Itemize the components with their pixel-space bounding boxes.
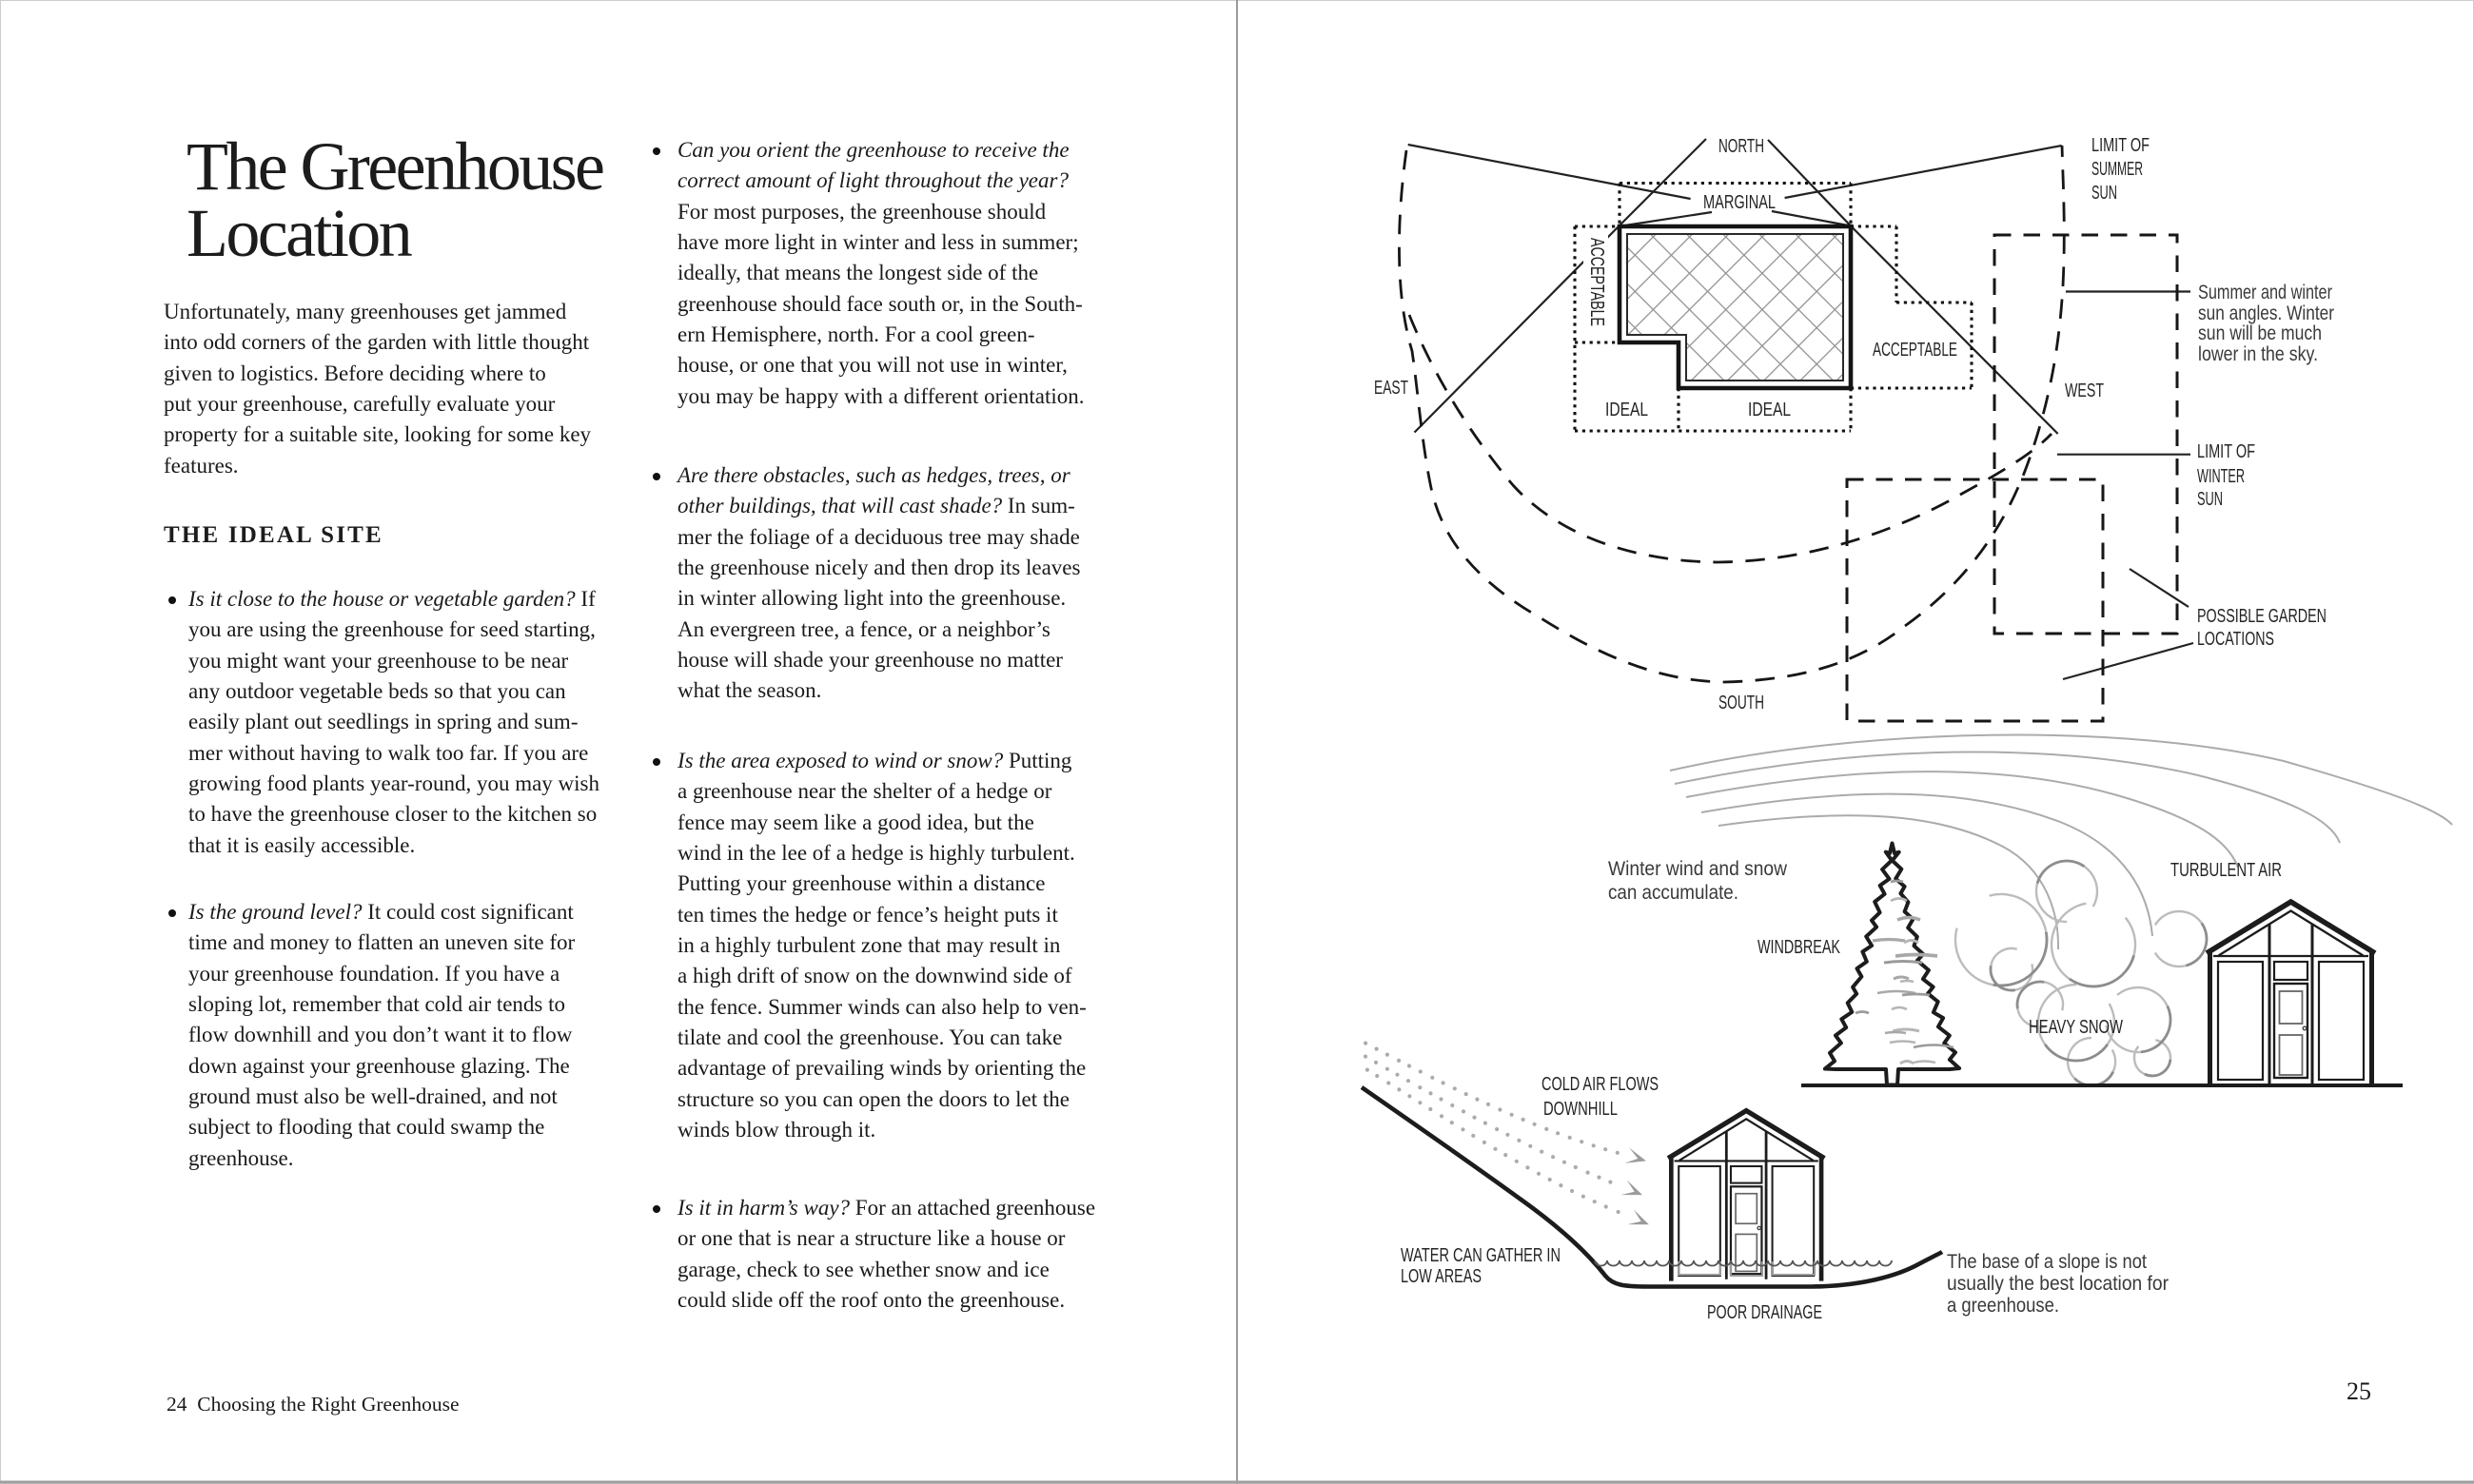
svg-text:POSSIBLE GARDEN: POSSIBLE GARDEN (2197, 605, 2327, 627)
svg-text:SOUTH: SOUTH (1718, 692, 1764, 713)
svg-text:ACCEPTABLE: ACCEPTABLE (1586, 238, 1608, 326)
svg-text:a greenhouse.: a greenhouse. (1947, 1295, 2059, 1317)
svg-text:EAST: EAST (1374, 377, 1408, 399)
svg-text:sun angles. Winter: sun angles. Winter (2198, 303, 2334, 324)
svg-text:LIMIT OF: LIMIT OF (2197, 440, 2255, 462)
svg-text:LOCATIONS: LOCATIONS (2197, 628, 2274, 650)
svg-text:WINTER: WINTER (2197, 465, 2245, 487)
svg-text:DOWNHILL: DOWNHILL (1543, 1098, 1618, 1120)
svg-text:NORTH: NORTH (1718, 135, 1764, 157)
svg-text:IDEAL: IDEAL (1605, 399, 1648, 420)
svg-text:POOR DRAINAGE: POOR DRAINAGE (1707, 1301, 1822, 1323)
svg-text:WATER CAN GATHER IN: WATER CAN GATHER IN (1401, 1244, 1561, 1266)
svg-text:LOW AREAS: LOW AREAS (1401, 1265, 1482, 1287)
svg-text:usually the best location for: usually the best location for (1947, 1273, 2169, 1295)
svg-text:SUMMER: SUMMER (2091, 158, 2143, 180)
svg-text:can accumulate.: can accumulate. (1608, 882, 1738, 904)
svg-text:Summer and winter: Summer and winter (2198, 282, 2332, 303)
svg-text:MARGINAL: MARGINAL (1703, 191, 1776, 213)
svg-text:SUN: SUN (2197, 488, 2223, 510)
svg-text:IDEAL: IDEAL (1748, 399, 1791, 420)
svg-text:SUN: SUN (2091, 182, 2117, 204)
svg-text:COLD AIR FLOWS: COLD AIR FLOWS (1541, 1073, 1659, 1095)
svg-text:Winter wind and snow: Winter wind and snow (1608, 858, 1788, 880)
svg-text:LIMIT OF: LIMIT OF (2091, 134, 2150, 156)
svg-text:HEAVY SNOW: HEAVY SNOW (2029, 1016, 2123, 1038)
svg-text:TURBULENT AIR: TURBULENT AIR (2170, 859, 2282, 881)
svg-text:sun will be much: sun will be much (2198, 322, 2322, 344)
svg-text:ACCEPTABLE: ACCEPTABLE (1873, 339, 1957, 361)
svg-text:lower in the sky.: lower in the sky. (2198, 343, 2318, 365)
svg-text:The base of a slope is not: The base of a slope is not (1947, 1251, 2147, 1273)
svg-text:WEST: WEST (2065, 380, 2104, 401)
svg-text:WINDBREAK: WINDBREAK (1757, 936, 1840, 958)
